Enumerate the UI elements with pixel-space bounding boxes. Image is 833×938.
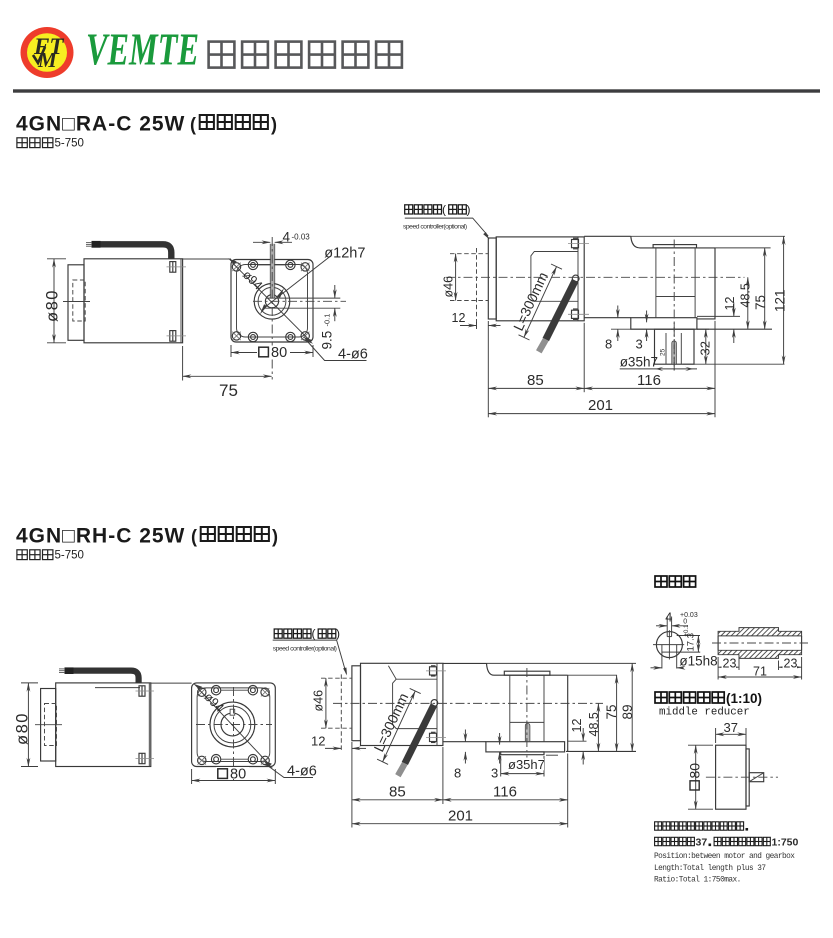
svg-text:ø94: ø94 [240,268,265,293]
svg-text:12: 12 [452,311,466,325]
svg-text:23: 23 [723,657,737,671]
svg-text:80: 80 [230,766,246,782]
svg-text:201: 201 [588,397,613,414]
svg-text:8: 8 [605,337,612,352]
svg-text:4GN□RH-C 25W: 4GN□RH-C 25W [16,525,185,548]
svg-text:9.5: 9.5 [320,331,335,350]
svg-text:3: 3 [491,766,498,781]
svg-text:3: 3 [636,337,643,352]
svg-text:Length:Total length plus 37: Length:Total length plus 37 [654,865,766,873]
svg-text:+0.1: +0.1 [684,624,690,637]
svg-text:5-750: 5-750 [55,550,84,562]
svg-text:): ) [467,202,471,216]
svg-text:Position:between motor and gea: Position:between motor and gearbox [654,853,795,861]
svg-text:(: ( [190,115,196,135]
svg-text:5-750: 5-750 [55,138,84,150]
svg-text:ø15h8: ø15h8 [679,654,717,669]
svg-text:ø12h7: ø12h7 [324,246,365,262]
svg-text:23: 23 [784,657,798,671]
svg-text:89: 89 [620,704,635,719]
svg-text:8: 8 [454,766,461,781]
svg-text:37: 37 [724,720,738,735]
svg-text:85: 85 [389,784,406,801]
svg-text:12: 12 [723,297,737,311]
svg-text:48.5: 48.5 [738,283,752,307]
svg-text:ø35h7: ø35h7 [508,757,545,772]
svg-text:4GN□RA-C 25W: 4GN□RA-C 25W [16,113,185,136]
svg-text:ø94: ø94 [201,690,226,715]
svg-text:75: 75 [219,381,238,400]
svg-text:VEMTE: VEMTE [86,24,199,75]
svg-text:4: 4 [283,230,291,245]
svg-text:): ) [336,627,340,641]
svg-text:(1:10): (1:10) [726,691,762,706]
svg-text:1:750: 1:750 [772,837,799,849]
svg-text:middle reducer: middle reducer [659,707,750,719]
svg-text:75: 75 [604,704,619,719]
svg-text:71: 71 [753,664,767,678]
svg-text:37: 37 [696,837,708,849]
svg-text:116: 116 [637,372,661,389]
svg-text:(: ( [312,627,316,641]
svg-text:116: 116 [493,784,517,801]
svg-text:ø80: ø80 [14,712,32,745]
svg-text:(: ( [442,202,446,216]
svg-text:Ratio:Total 1:750max.: Ratio:Total 1:750max. [654,877,741,885]
svg-text:-0.03: -0.03 [292,233,311,242]
svg-text:): ) [271,115,277,135]
svg-text:80: 80 [271,345,287,361]
svg-text:4-ø6: 4-ø6 [287,764,317,780]
svg-text:32: 32 [698,341,713,355]
svg-text:-0.1: -0.1 [323,314,332,327]
svg-text:201: 201 [448,807,473,824]
svg-text:(: ( [191,527,197,547]
svg-text:12: 12 [570,719,584,733]
svg-text:48.5: 48.5 [587,712,601,736]
svg-text:0: 0 [683,618,687,625]
svg-text:4: 4 [665,611,672,625]
svg-text:85: 85 [527,372,544,389]
svg-text:80: 80 [687,763,703,779]
svg-text:4-ø6: 4-ø6 [338,347,368,363]
svg-text:ø46: ø46 [442,276,456,298]
svg-text:ø80: ø80 [44,289,62,322]
svg-text:speed controller(optional): speed controller(optional) [273,646,337,653]
svg-text:ø35h7: ø35h7 [620,355,658,370]
svg-text:speed controller(optional): speed controller(optional) [403,224,467,231]
svg-text:25: 25 [660,348,667,356]
svg-text:12: 12 [311,734,325,749]
svg-text:75: 75 [753,295,768,310]
svg-text:ø46: ø46 [312,690,326,712]
svg-text:): ) [272,527,278,547]
svg-text:121: 121 [772,289,787,312]
